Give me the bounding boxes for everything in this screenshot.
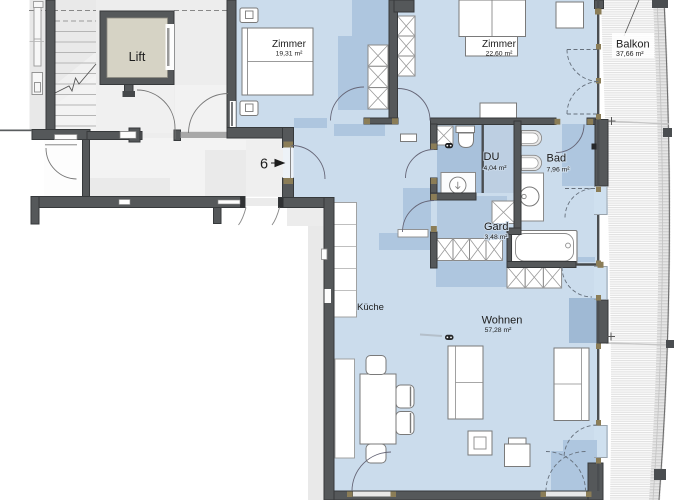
svg-text:7,96 m²: 7,96 m² (547, 167, 571, 174)
svg-text:Balkon: Balkon (616, 39, 650, 51)
svg-text:22,60 m²: 22,60 m² (486, 51, 514, 58)
svg-text:Küche: Küche (357, 302, 384, 313)
svg-text:Zimmer: Zimmer (482, 39, 517, 50)
svg-text:Lift: Lift (129, 50, 146, 64)
svg-text:Wohnen: Wohnen (482, 315, 523, 327)
svg-text:37,66 m²: 37,66 m² (616, 51, 644, 58)
svg-text:6: 6 (260, 157, 268, 173)
svg-text:Zimmer: Zimmer (272, 39, 307, 50)
svg-text:Gard: Gard (484, 221, 508, 233)
svg-text:DU: DU (484, 151, 500, 163)
svg-text:3,48 m²: 3,48 m² (485, 234, 509, 241)
svg-text:57,28 m²: 57,28 m² (485, 327, 513, 334)
svg-text:4,04 m²: 4,04 m² (484, 165, 508, 172)
svg-text:Bad: Bad (547, 153, 567, 165)
svg-text:19,31 m²: 19,31 m² (276, 51, 304, 58)
